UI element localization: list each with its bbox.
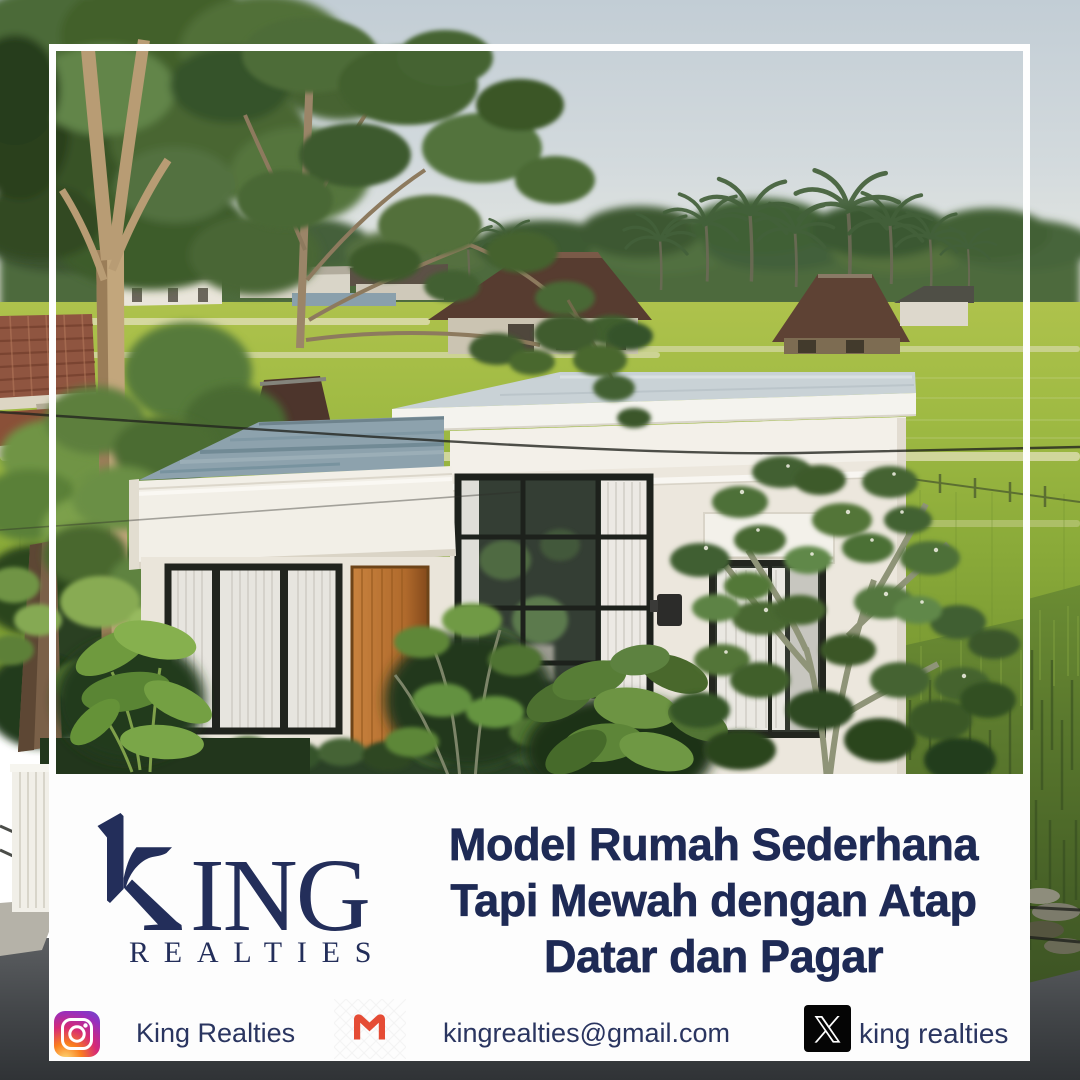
svg-text:REALTIES: REALTIES [129, 936, 380, 969]
